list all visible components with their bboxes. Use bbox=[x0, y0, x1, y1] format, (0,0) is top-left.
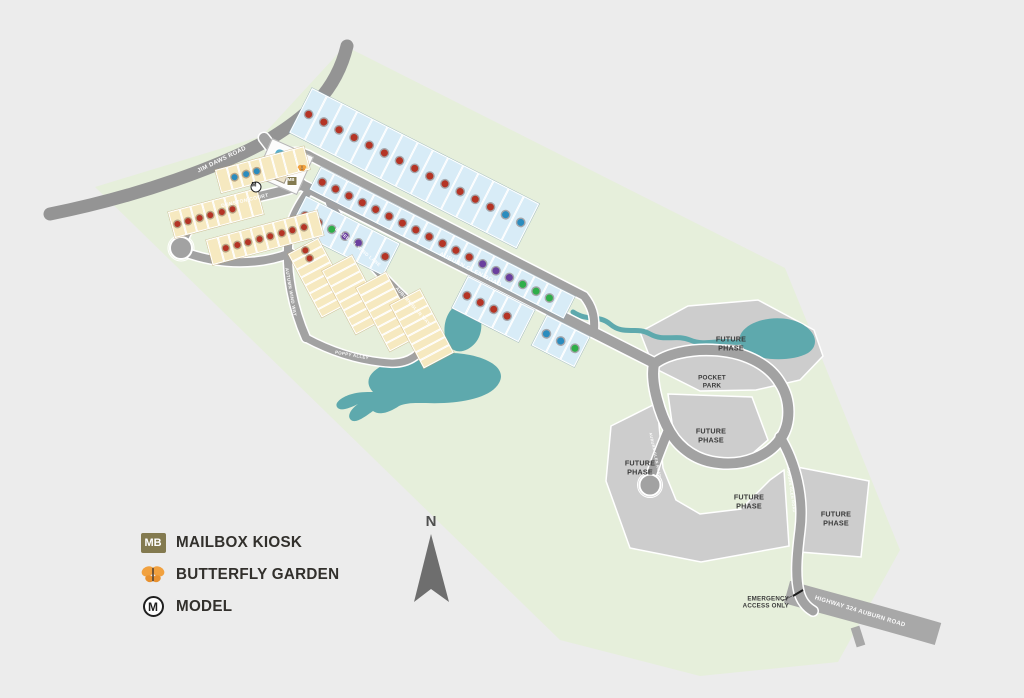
cul-de-sac bbox=[425, 326, 441, 342]
model-icon: M bbox=[140, 596, 166, 617]
model-symbol: M bbox=[143, 596, 164, 617]
legend-item-mailbox-kiosk: MB MAILBOX KIOSK bbox=[140, 531, 348, 554]
legend-label: MAILBOX KIOSK bbox=[176, 534, 302, 552]
legend: MB MAILBOX KIOSK BUTTERFLY GARDEN M MODE… bbox=[140, 531, 348, 627]
site-plan-map: POOL MBM JIM DAWS ROADDUNSTON COURTAUBUR… bbox=[0, 0, 1024, 698]
legend-label: BUTTERFLY GARDEN bbox=[176, 566, 339, 584]
pool-label: POOL bbox=[279, 155, 294, 165]
legend-item-model: M MODEL bbox=[140, 595, 348, 618]
mailbox-kiosk-symbol: MB bbox=[141, 533, 166, 553]
butterfly-icon bbox=[140, 564, 166, 585]
cul-de-sac bbox=[640, 475, 661, 496]
cul-de-sac bbox=[170, 237, 192, 259]
mailbox-kiosk-icon: MB bbox=[140, 533, 166, 553]
legend-item-butterfly-garden: BUTTERFLY GARDEN bbox=[140, 563, 348, 586]
future-phase-area bbox=[797, 467, 869, 557]
compass-label: N bbox=[426, 513, 437, 530]
legend-label: MODEL bbox=[176, 598, 232, 616]
